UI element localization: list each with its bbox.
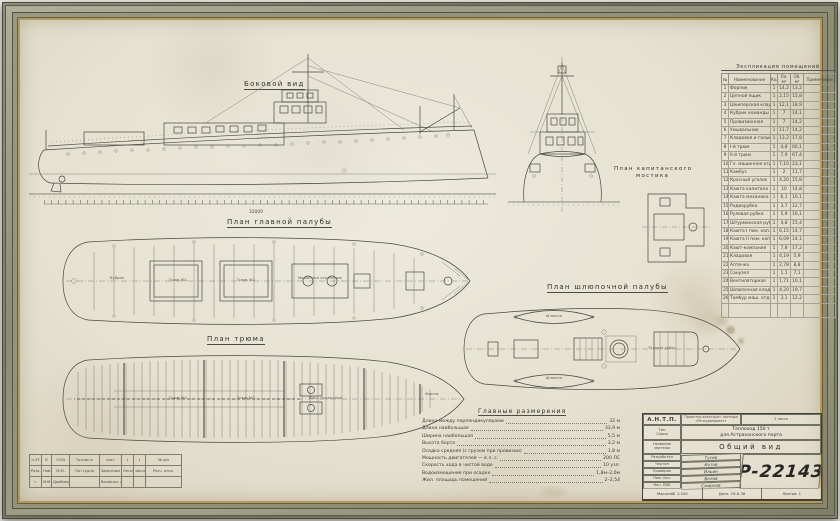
table-cell: 6,1 (778, 194, 791, 202)
table-cell: 14,1 (791, 236, 804, 244)
table-row: 21Кладовая14,195,9 (722, 253, 836, 261)
revision-cell: зам.роли (134, 466, 146, 477)
table-cell: 1 (771, 211, 778, 219)
revision-cell: Возможн. копий (100, 477, 122, 488)
main-deck-label: План главной палубы (227, 218, 332, 228)
table-cell: 12,2 (791, 295, 804, 303)
table-cell (804, 253, 836, 261)
revision-cell: 1934 (52, 455, 70, 466)
table-cell: 7 (778, 118, 791, 126)
table-cell: 11,7 (778, 127, 791, 135)
date-cell: Дата19.X.38 (703, 488, 763, 499)
table-cell: Вентиляторная (729, 278, 771, 286)
table-cell: 8 (722, 143, 729, 151)
table-cell: 11 (722, 169, 729, 177)
table-cell: 10 (722, 160, 729, 168)
table-cell (804, 194, 836, 202)
org-subtitle: Проектно-конструкт. контора«Речсудопроек… (681, 414, 741, 425)
table-cell: Каюта капитана (729, 185, 771, 193)
table-cell: 1 (771, 295, 778, 303)
table-cell: Санузел (729, 269, 771, 277)
table-cell: 16,1 (791, 194, 804, 202)
table-header-cell: Кол (771, 74, 778, 85)
table-cell: 19,7 (791, 286, 804, 294)
table-cell (804, 135, 836, 143)
table-row: 24Вентиляторная11,7110,1 (722, 278, 836, 286)
table-row: 10Гл. машинное отд.17,1023,1 (722, 160, 836, 168)
table-cell: 15,4 (791, 219, 804, 227)
table-cell (804, 177, 836, 185)
table-cell (804, 93, 836, 101)
table-cell: 4,19 (778, 253, 791, 261)
table-cell (804, 261, 836, 269)
revision-cell (134, 477, 146, 488)
table-cell: 14,2 (778, 85, 791, 93)
table-cell: 1 (771, 160, 778, 168)
table-cell: 10 (778, 185, 791, 193)
dimension-line: Мощность двигателей — в л. с.200 ЛС (422, 455, 620, 462)
dimension-line: Водоизмещение при осадке1,8м–2,0м (422, 470, 620, 477)
framed-blueprint-photo: Боковой вид (0, 0, 840, 521)
table-cell (804, 185, 836, 193)
table-cell: 16 (722, 211, 729, 219)
table-cell: 18 (722, 227, 729, 235)
table-header-cell: Примечание (804, 74, 836, 85)
hold-plan-drawing (54, 346, 468, 454)
table-cell (804, 244, 836, 252)
deck-room-label: Кубрик (102, 276, 132, 280)
table-cell (804, 236, 836, 244)
table-cell: 13,2 (791, 85, 804, 93)
table-cell: 23 (722, 269, 729, 277)
table-header-cell: № (722, 74, 729, 85)
boat-label: Рулевая рубка (642, 346, 682, 350)
table-row: 9II-й трюм17,967,4 (722, 152, 836, 160)
table-cell: 4 (722, 110, 729, 118)
table-cell: 7 (722, 135, 729, 143)
table-header-cell: Об. м³ (791, 74, 804, 85)
table-cell: Кают-компания (729, 244, 771, 252)
table-cell: 1 (771, 152, 778, 160)
deck-room-label: Машинное отделение (290, 276, 350, 280)
revision-cell: г (30, 477, 42, 488)
revision-cell: Ом.отд. (122, 466, 134, 477)
table-cell: 5 (722, 118, 729, 126)
table-row: 7Кладовая и гальюн113,217,8 (722, 135, 836, 143)
table-cell: 1 (771, 194, 778, 202)
table-cell: 13,2 (778, 135, 791, 143)
table-cell: Цепной ящик (729, 93, 771, 101)
table-cell: 1 (771, 253, 778, 261)
table-cell: Шкиперская кладов. (729, 101, 771, 109)
table-cell: 1 (771, 118, 778, 126)
table-cell (804, 227, 836, 235)
dimension-line: Длина между перпендикулярами32 м (422, 418, 620, 425)
revision-cell: № а/м (146, 455, 182, 466)
dimension-line: Ширина наибольшая5,5 м (422, 433, 620, 440)
main-dimensions-block: Главные размерения Длина между перпендик… (422, 398, 620, 485)
bridge-plan-label-line2: мостика (636, 173, 669, 180)
table-cell: 10,1 (791, 278, 804, 286)
table-row: 1Форпик114,213,2 (722, 85, 836, 93)
table-cell: 7,9 (778, 152, 791, 160)
table-cell (804, 118, 836, 126)
table-cell: 6,09 (778, 236, 791, 244)
table-row: 4Кубрик команды1714,1 (722, 110, 836, 118)
revision-cell: Нов. (42, 466, 52, 477)
table-cell: 1 (771, 286, 778, 294)
main-dimensions-title: Главные размерения (478, 408, 566, 416)
table-cell (804, 143, 836, 151)
table-cell: Каюта механика (729, 194, 771, 202)
table-cell (804, 211, 836, 219)
revision-row: гМ.М.ДообмерВозможн. копий (30, 477, 182, 488)
table-cell: 5,9 (778, 211, 791, 219)
table-cell: 17,8 (791, 135, 804, 143)
table-cell (804, 127, 836, 135)
table-cell: Штурманская рубка (729, 219, 771, 227)
blueprint-paper: Боковой вид (18, 18, 822, 503)
revision-row: п.33Б1934Точностьлист11№ а/м (30, 455, 182, 466)
org-abbrev: А.Н.Т.П. (643, 414, 681, 425)
table-cell: 1 (771, 143, 778, 151)
hold-room-label: Трюм №1 (158, 396, 198, 400)
table-cell: 12 (722, 177, 729, 185)
table-cell: 7,1 (791, 269, 804, 277)
sign-role-label: Чертил (643, 461, 681, 468)
revision-cell: Точность (70, 455, 100, 466)
table-cell: 3 (722, 101, 729, 109)
table-cell (804, 278, 836, 286)
table-cell: 7,10 (778, 160, 791, 168)
sheets-cell: Листов1 (762, 488, 821, 499)
table-cell: 1 (771, 93, 778, 101)
table-cell: 1 (771, 236, 778, 244)
table-cell: 15 (722, 202, 729, 210)
table-cell: 12,1 (778, 101, 791, 109)
table-cell: Камбуз (729, 169, 771, 177)
drawing-name-label: Названиечертежа (643, 440, 681, 454)
table-cell (804, 101, 836, 109)
table-row: 23Санузел11,17,1 (722, 269, 836, 277)
deck-room-label: Трюм №1 (158, 278, 198, 282)
table-cell: 4,20 (778, 177, 791, 185)
revision-cell: Заречным (100, 466, 122, 477)
table-cell (804, 286, 836, 294)
table-cell: 13 (722, 185, 729, 193)
table-cell: 8,8 (791, 261, 804, 269)
drawing-number: Р-22143 (739, 454, 823, 489)
sign-role-label: Пом. нач. (643, 475, 681, 482)
dimension-line: Жил. площадь помещений2–2,54 (422, 477, 620, 484)
table-cell (804, 202, 836, 210)
explication-title: Экспликация помещений (721, 64, 835, 71)
table-cell: 1 (771, 227, 778, 235)
table-cell: 16,1 (791, 211, 804, 219)
table-cell (804, 295, 836, 303)
table-cell: 4,20 (778, 286, 791, 294)
sign-role-label: Проверил (643, 468, 681, 475)
revision-cell: Расч. отпр. (146, 466, 182, 477)
table-cell: 1 (771, 278, 778, 286)
boat-deck-label: План шлюпочной палубы (547, 283, 668, 293)
revision-cell: М.М. (52, 466, 70, 477)
org-right-note: 2 листа (741, 414, 821, 425)
deck-room-label: Трюм №2 (226, 278, 266, 282)
revision-cell: 1 (122, 455, 134, 466)
front-view-drawing (500, 52, 628, 220)
table-header-row: №НаименованиеКолПл. м²Об. м³Примечание (722, 74, 836, 85)
table-row: 12Красный уголок14,2015,8 (722, 177, 836, 185)
table-row: 14Каюта механика16,116,1 (722, 194, 836, 202)
table-cell: Рулевая рубка (729, 211, 771, 219)
table-cell: 3,1 (778, 295, 791, 303)
table-row: 20Кают-компания17,817,2 (722, 244, 836, 252)
paper-stain (540, 488, 566, 496)
table-cell: 7 (778, 110, 791, 118)
table-cell: 1 (771, 219, 778, 227)
table-cell: 14,1 (791, 110, 804, 118)
table-row: 11Камбуз1211,7 (722, 169, 836, 177)
length-dimension-text: 32000 (249, 209, 263, 215)
table-cell: Гл. машинное отд. (729, 160, 771, 168)
table-cell (804, 152, 836, 160)
table-cell: 60,1 (791, 143, 804, 151)
table-cell: 67,4 (791, 152, 804, 160)
table-cell (804, 169, 836, 177)
table-cell: 24 (722, 278, 729, 286)
table-row: 13Каюта капитана11014,8 (722, 185, 836, 193)
table-cell: 14,7 (791, 227, 804, 235)
table-row: 22Аптечка12,788,8 (722, 261, 836, 269)
table-cell: 18,9 (791, 101, 804, 109)
boat-label: Шлюпка (532, 314, 576, 318)
table-cell (804, 160, 836, 168)
hold-plan-label: План трюма (207, 335, 265, 345)
table-cell: 4,8 (778, 219, 791, 227)
table-cell: 22 (722, 261, 729, 269)
table-row: 15Радиорубка13,712,7 (722, 202, 836, 210)
table-row: 6Умывальник111,714,2 (722, 127, 836, 135)
revision-cell: п.33 (30, 455, 42, 466)
table-cell: Кладовая (729, 253, 771, 261)
table-cell: 1 (771, 101, 778, 109)
revision-cell (70, 477, 100, 488)
table-cell: Провизионная (729, 118, 771, 126)
type-series-label: ТипСерия (643, 425, 681, 440)
table-cell: 1 (771, 110, 778, 118)
boat-label: Шлюпка (532, 376, 576, 380)
table-cell: 1 (771, 269, 778, 277)
dimension-line: Скорость хода в чистой воде10 узл. (422, 462, 620, 469)
hold-room-label: Маш. отделение (298, 396, 353, 400)
table-cell: 14,8 (791, 185, 804, 193)
table-cell: 14,2 (791, 127, 804, 135)
main-deck-plan-drawing (54, 228, 478, 336)
table-cell: Форпик (729, 85, 771, 93)
table-cell: 11,7 (791, 169, 804, 177)
table-cell: Кубрик команды (729, 110, 771, 118)
table-row: 8I-й трюм14,860,1 (722, 143, 836, 151)
vessel-type-value: Теплоход 150 тдля Астраханского порта (681, 425, 821, 440)
revision-cell (146, 477, 182, 488)
table-cell: Радиорубка (729, 202, 771, 210)
table-row: 19Каюта II пом. кап.16,0914,1 (722, 236, 836, 244)
table-cell: 15,8 (791, 177, 804, 185)
revision-cell: Дообмер (52, 477, 70, 488)
table-cell: 17 (722, 219, 729, 227)
table-cell (804, 269, 836, 277)
table-cell: 1 (771, 185, 778, 193)
table-cell: 14 (722, 194, 729, 202)
revision-cell: Б (42, 455, 52, 466)
table-cell: 6,15 (778, 227, 791, 235)
table-cell: 1 (722, 85, 729, 93)
explication-table: Экспликация помещений №НаименованиеКолПл… (721, 64, 835, 318)
table-cell: 23,1 (791, 160, 804, 168)
hold-room-label: Трюм №2 (226, 396, 266, 400)
table-cell: 5,9 (791, 253, 804, 261)
table-cell: 7,8 (778, 244, 791, 252)
table-cell: 20 (722, 244, 729, 252)
table-cell: 2 (778, 169, 791, 177)
table-cell: 1 (771, 202, 778, 210)
table-cell: 12,7 (791, 202, 804, 210)
revision-block: п.33Б1934Точностьлист11№ а/мРазр.Нов.М.М… (29, 454, 181, 488)
table-cell (804, 85, 836, 93)
boat-deck-plan-drawing (454, 294, 748, 406)
table-header-cell: Пл. м² (778, 74, 791, 85)
table-header-cell: Наименование (729, 74, 771, 85)
table-cell: 2,78 (778, 261, 791, 269)
table-cell: Красный уголок (729, 177, 771, 185)
table-cell: II-й трюм (729, 152, 771, 160)
table-cell: Кладовая и гальюн (729, 135, 771, 143)
table-cell: 14,2 (791, 118, 804, 126)
table-cell: 1 (771, 169, 778, 177)
table-cell: 3,7 (778, 202, 791, 210)
table-row: 2Цепной ящик12,1515,8 (722, 93, 836, 101)
table-cell: 1 (771, 135, 778, 143)
table-cell: 6 (722, 127, 729, 135)
hold-room-label: Форпик (414, 392, 450, 396)
scale-cell: Масштаб1:100 (643, 488, 703, 499)
dimension-line: Осадка средняя (с грузом при провизии)1,… (422, 448, 620, 455)
table-cell: 1 (771, 177, 778, 185)
revision-cell: Разр. (30, 466, 42, 477)
revision-cell: Тип судна (70, 466, 100, 477)
table-cell: 1,1 (778, 269, 791, 277)
table-cell: 4,8 (778, 143, 791, 151)
table-cell: Каюта II пом. кап. (729, 236, 771, 244)
revision-row: Разр.Нов.М.М.Тип суднаЗаречнымОм.отд.зам… (30, 466, 182, 477)
table-cell: 1 (771, 127, 778, 135)
table-row: 5Провизионная1714,2 (722, 118, 836, 126)
dimension-line: Длина наибольшая33,9 м (422, 425, 620, 432)
revision-cell: 1 (134, 455, 146, 466)
revision-cell: лист (100, 455, 122, 466)
table-cell: 9 (722, 152, 729, 160)
revision-cell: М.М. (42, 477, 52, 488)
sign-role-label: Разработал (643, 454, 681, 461)
table-cell: 1 (771, 261, 778, 269)
table-cell: 17,2 (791, 244, 804, 252)
table-row: 17Штурманская рубка14,815,4 (722, 219, 836, 227)
bridge-plan-label-line1: План капитанского (614, 166, 692, 173)
table-cell: 2,15 (778, 93, 791, 101)
side-view-drawing: 32000 (24, 46, 502, 218)
table-cell: Аптечка (729, 261, 771, 269)
table-cell: Каюта I пом. кап. (729, 227, 771, 235)
table-cell: I-й трюм (729, 143, 771, 151)
table-cell: 2 (722, 93, 729, 101)
table-cell: Умывальник (729, 127, 771, 135)
table-row: 16Рулевая рубка15,916,1 (722, 211, 836, 219)
table-cell: 21 (722, 253, 729, 261)
table-cell: 1 (771, 244, 778, 252)
table-cell: 15,8 (791, 93, 804, 101)
dimension-line: Высота борта3,2 м (422, 440, 620, 447)
table-cell (804, 110, 836, 118)
table-cell: 19 (722, 236, 729, 244)
title-block-footer: Масштаб1:100 Дата19.X.38 Листов1 (642, 488, 822, 500)
revision-cell (122, 477, 134, 488)
table-cell: 1 (771, 85, 778, 93)
table-row: 18Каюта I пом. кап.16,1514,7 (722, 227, 836, 235)
table-cell (804, 219, 836, 227)
bridge-plan-drawing (640, 188, 712, 270)
drawing-name-value: Общий вид (681, 440, 821, 454)
table-row: 3Шкиперская кладов.112,118,9 (722, 101, 836, 109)
table-cell: 1,71 (778, 278, 791, 286)
